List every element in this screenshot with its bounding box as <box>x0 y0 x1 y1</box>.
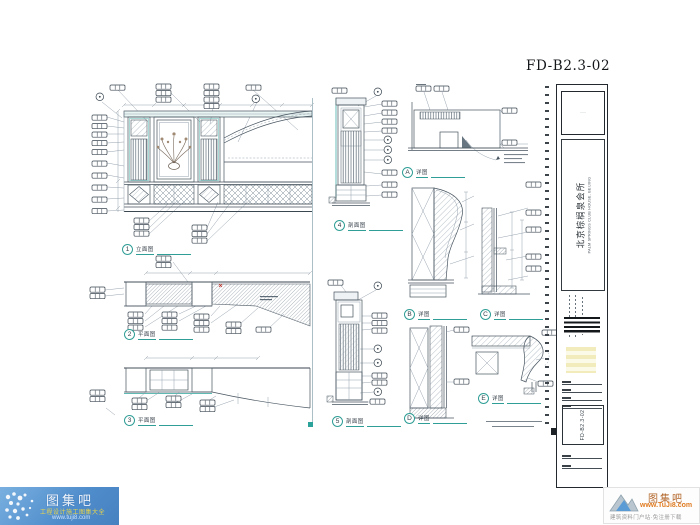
sheet-cut-mark <box>308 422 313 427</box>
detail-label-e: E 详图 <box>478 392 541 404</box>
detail-bubble-5: 5 <box>332 416 343 427</box>
detail-label-b: B 详图 <box>404 308 467 320</box>
watermark-url: www.tuji8.com <box>52 515 90 521</box>
detail-bubble-4: 4 <box>334 220 345 231</box>
detail-bubble-3: 3 <box>124 415 135 426</box>
titleblock-revision-ticks <box>545 86 549 430</box>
mountain-logo <box>608 491 640 513</box>
detail-title-d: 详图 <box>418 416 430 424</box>
detail-label-2: 2 平面图 <box>124 328 193 340</box>
titleblock-field-row <box>562 461 602 469</box>
detail-underline <box>159 418 193 426</box>
titleblock-logo-box: ··· <box>561 91 605 135</box>
titleblock-highlight-block <box>566 347 596 373</box>
flower-logo <box>2 489 44 523</box>
detail-label-a: A 详图 <box>402 166 465 178</box>
detail-bubble-e: E <box>478 393 489 404</box>
detail-label-3: 3 平面图 <box>124 414 193 426</box>
detail-title-e: 详图 <box>492 396 504 404</box>
detail-title-c: 详图 <box>494 312 506 320</box>
drawing-detail-b <box>398 178 474 310</box>
titleblock-consultant-stamp <box>564 317 600 334</box>
drawing-plan-3 <box>88 352 316 416</box>
drawing-detail-a <box>396 84 538 172</box>
drawing-number: FD-B2.3-02 <box>580 410 586 441</box>
sheet-number: FD-B2.3-02 <box>526 58 610 74</box>
detail-bubble-c: C <box>480 309 491 320</box>
drawing-elevation-1 <box>88 82 318 248</box>
drawing-section-5 <box>324 276 404 416</box>
plot-note-line <box>492 426 534 427</box>
detail-underline <box>433 416 467 424</box>
detail-title-3: 平面图 <box>138 418 156 426</box>
drawing-detail-e <box>466 326 566 398</box>
detail-underline <box>431 170 465 178</box>
detail-bubble-2: 2 <box>124 329 135 340</box>
logo-mark: ··· <box>580 110 586 116</box>
project-name-cn: 北京棕榈泉会所 <box>575 177 587 254</box>
titleblock-field-row <box>562 377 602 385</box>
detail-label-4: 4 剖面图 <box>334 219 403 231</box>
detail-label-d: D 详图 <box>404 412 467 424</box>
project-name-en: PALM SPRINGS CLUB HOUSE, BEIJING <box>588 177 592 254</box>
detail-bubble-a: A <box>402 167 413 178</box>
watermark-tagline: 建筑资料门户站·免注册下载 <box>610 513 682 521</box>
detail-title-b: 详图 <box>418 312 430 320</box>
detail-title-5: 剖面图 <box>346 419 364 427</box>
detail-underline <box>367 419 401 427</box>
titleblock-field-row <box>562 385 602 393</box>
detail-bubble-d: D <box>404 413 415 424</box>
drawing-plan-2 <box>88 254 316 340</box>
titleblock-project-box: 北京棕榈泉会所 PALM SPRINGS CLUB HOUSE, BEIJING <box>561 139 605 291</box>
detail-title-a: 详图 <box>416 170 428 178</box>
titleblock-field-row <box>562 451 602 459</box>
watermark-tuji8-banner: 图集吧 工程设计施工图集大全 www.tuji8.com <box>0 487 119 525</box>
detail-underline <box>507 396 541 404</box>
plot-note-line <box>486 421 542 422</box>
detail-underline <box>433 312 467 320</box>
detail-label-c: C 详图 <box>480 308 543 320</box>
drawing-detail-d <box>398 320 474 422</box>
titleblock-drawing-number-box: FD-B2.3-02 <box>562 405 604 445</box>
titleblock-field-row <box>562 393 602 401</box>
detail-label-5: 5 剖面图 <box>332 415 401 427</box>
title-block: ··· 北京棕榈泉会所 PALM SPRINGS CLUB HOUSE, BEI… <box>556 84 608 488</box>
watermark-tuji8-badge: 图集吧 www.TuJi8.com 建筑资料门户站·免注册下载 <box>603 487 700 524</box>
drawing-section-4 <box>324 86 404 218</box>
detail-underline <box>159 332 193 340</box>
sheet-cut-line <box>312 98 313 426</box>
detail-bubble-b: B <box>404 309 415 320</box>
watermark-url: www.TuJi8.com <box>640 502 692 509</box>
detail-title-2: 平面图 <box>138 332 156 340</box>
detail-underline <box>509 312 543 320</box>
drawing-sheet: 1 立面图 2 平面图 3 平面图 <box>0 0 700 525</box>
detail-title-4: 剖面图 <box>348 223 366 231</box>
